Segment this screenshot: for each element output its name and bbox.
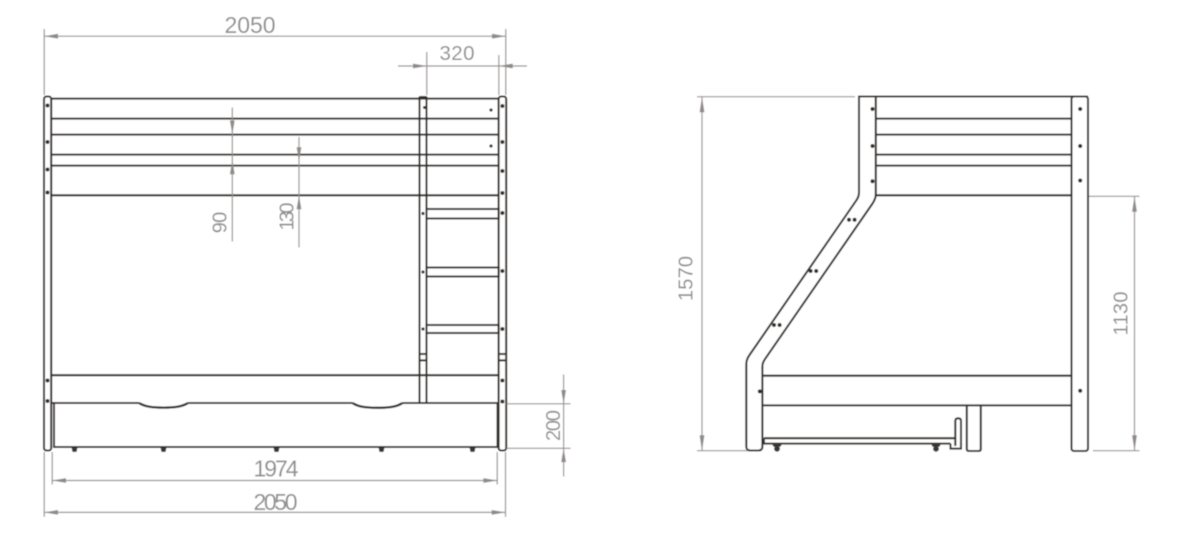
svg-text:2050: 2050 <box>225 12 276 38</box>
svg-text:200: 200 <box>543 410 565 441</box>
svg-text:130: 130 <box>277 203 299 231</box>
svg-text:2050: 2050 <box>254 489 298 515</box>
svg-text:1974: 1974 <box>254 456 299 482</box>
svg-text:320: 320 <box>440 42 475 65</box>
svg-text:1570: 1570 <box>676 256 698 301</box>
svg-text:1130: 1130 <box>1111 292 1133 336</box>
svg-text:90: 90 <box>210 212 232 234</box>
